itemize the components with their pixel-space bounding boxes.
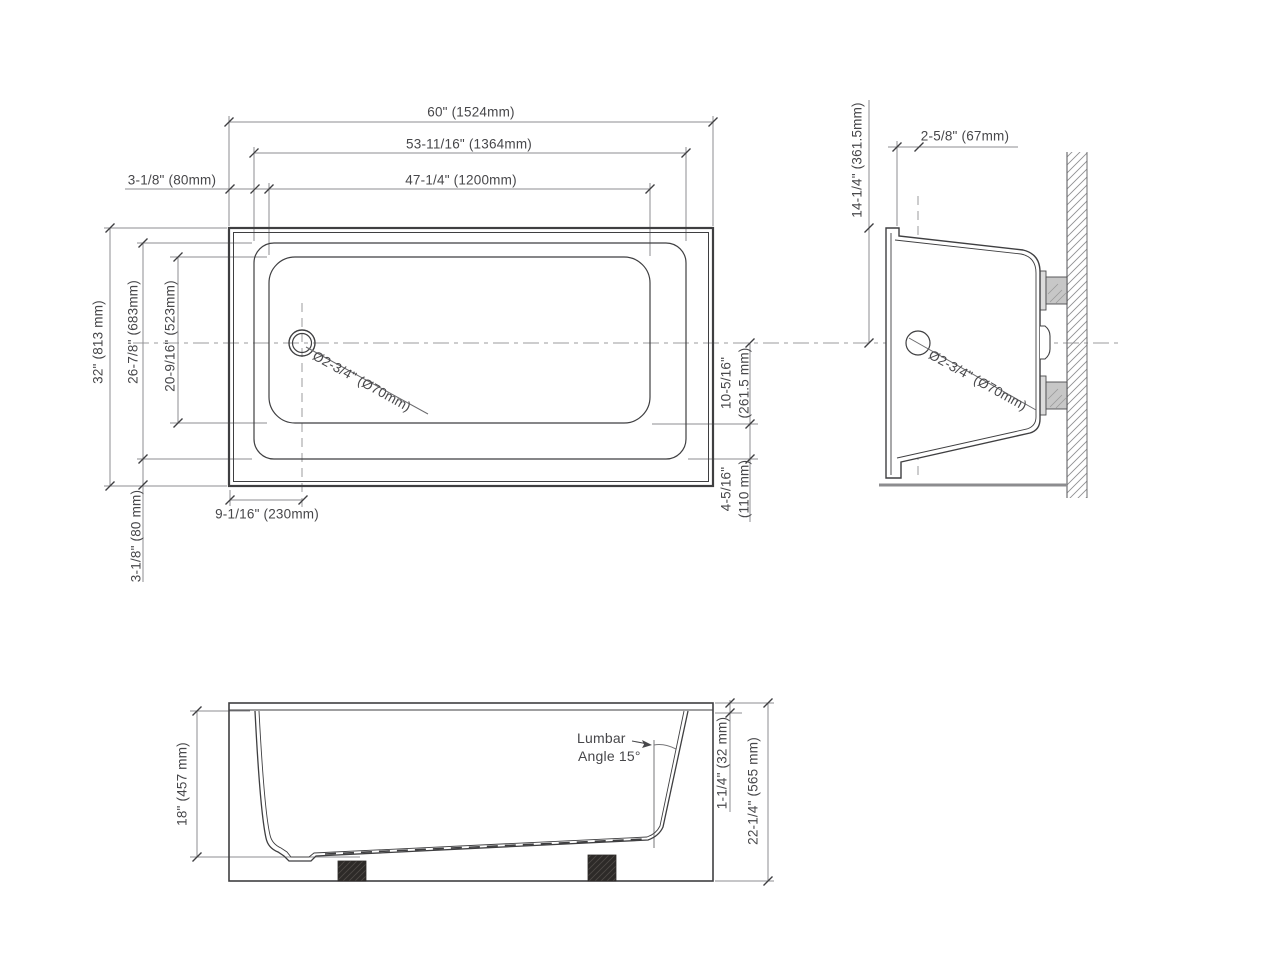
lumbar-angle-arc (654, 745, 676, 750)
dim-basin-to-deck-mm: (110 mm) (737, 460, 751, 518)
dim-center-to-basin-in: 10-5/16" (719, 357, 733, 409)
wall-section (1067, 152, 1087, 498)
dim-basin-to-deck-in: 4-5/16" (719, 467, 733, 511)
dim-overall-depth: 32" (813 mm) (91, 300, 105, 384)
dim-overall-width: 60" (1524mm) (427, 105, 514, 119)
dim-basin-depth: 20-9/16" (523mm) (163, 280, 177, 392)
overflow-boss (1040, 326, 1050, 359)
drawing-canvas (0, 0, 1280, 969)
tub-feet (338, 855, 616, 881)
dim-basin-depth-front: 18" (457 mm) (175, 742, 189, 826)
dim-deck-offset-bottom: 3-1/8" (80 mm) (129, 490, 143, 582)
front-view (190, 699, 774, 886)
lumbar-angle-label-line2: Angle 15° (578, 749, 641, 763)
dim-deck-offset-left: 3-1/8" (80mm) (128, 173, 216, 187)
dim-deck-depth: 26-7/8" (683mm) (126, 280, 140, 384)
dim-basin-width: 47-1/4" (1200mm) (405, 173, 517, 187)
dim-deck-width: 53-11/16" (1364mm) (406, 137, 532, 151)
end-view (865, 100, 1088, 498)
dim-drain-from-left: 9-1/16" (230mm) (215, 507, 319, 521)
front-dimension-lines (190, 700, 774, 881)
tub-front-outline (229, 703, 713, 881)
dim-rim-thickness: 1-1/4" (32 mm) (715, 717, 729, 809)
dim-rim-to-drain-center: 14-1/4" (361.5mm) (850, 102, 864, 218)
drawing-sheet: 60" (1524mm) 53-11/16" (1364mm) 47-1/4" … (0, 0, 1280, 969)
basin-outline (269, 257, 650, 423)
dim-overall-height: 22-1/4" (565 mm) (746, 737, 760, 845)
dim-drain-center-offset: 2-5/8" (67mm) (921, 129, 1009, 143)
basin-floor-dashed-line (325, 839, 645, 854)
lumbar-leader (632, 740, 652, 748)
lumbar-angle-label-line1: Lumbar (577, 731, 626, 745)
dim-center-to-basin-mm: (261.5 mm) (737, 347, 751, 418)
